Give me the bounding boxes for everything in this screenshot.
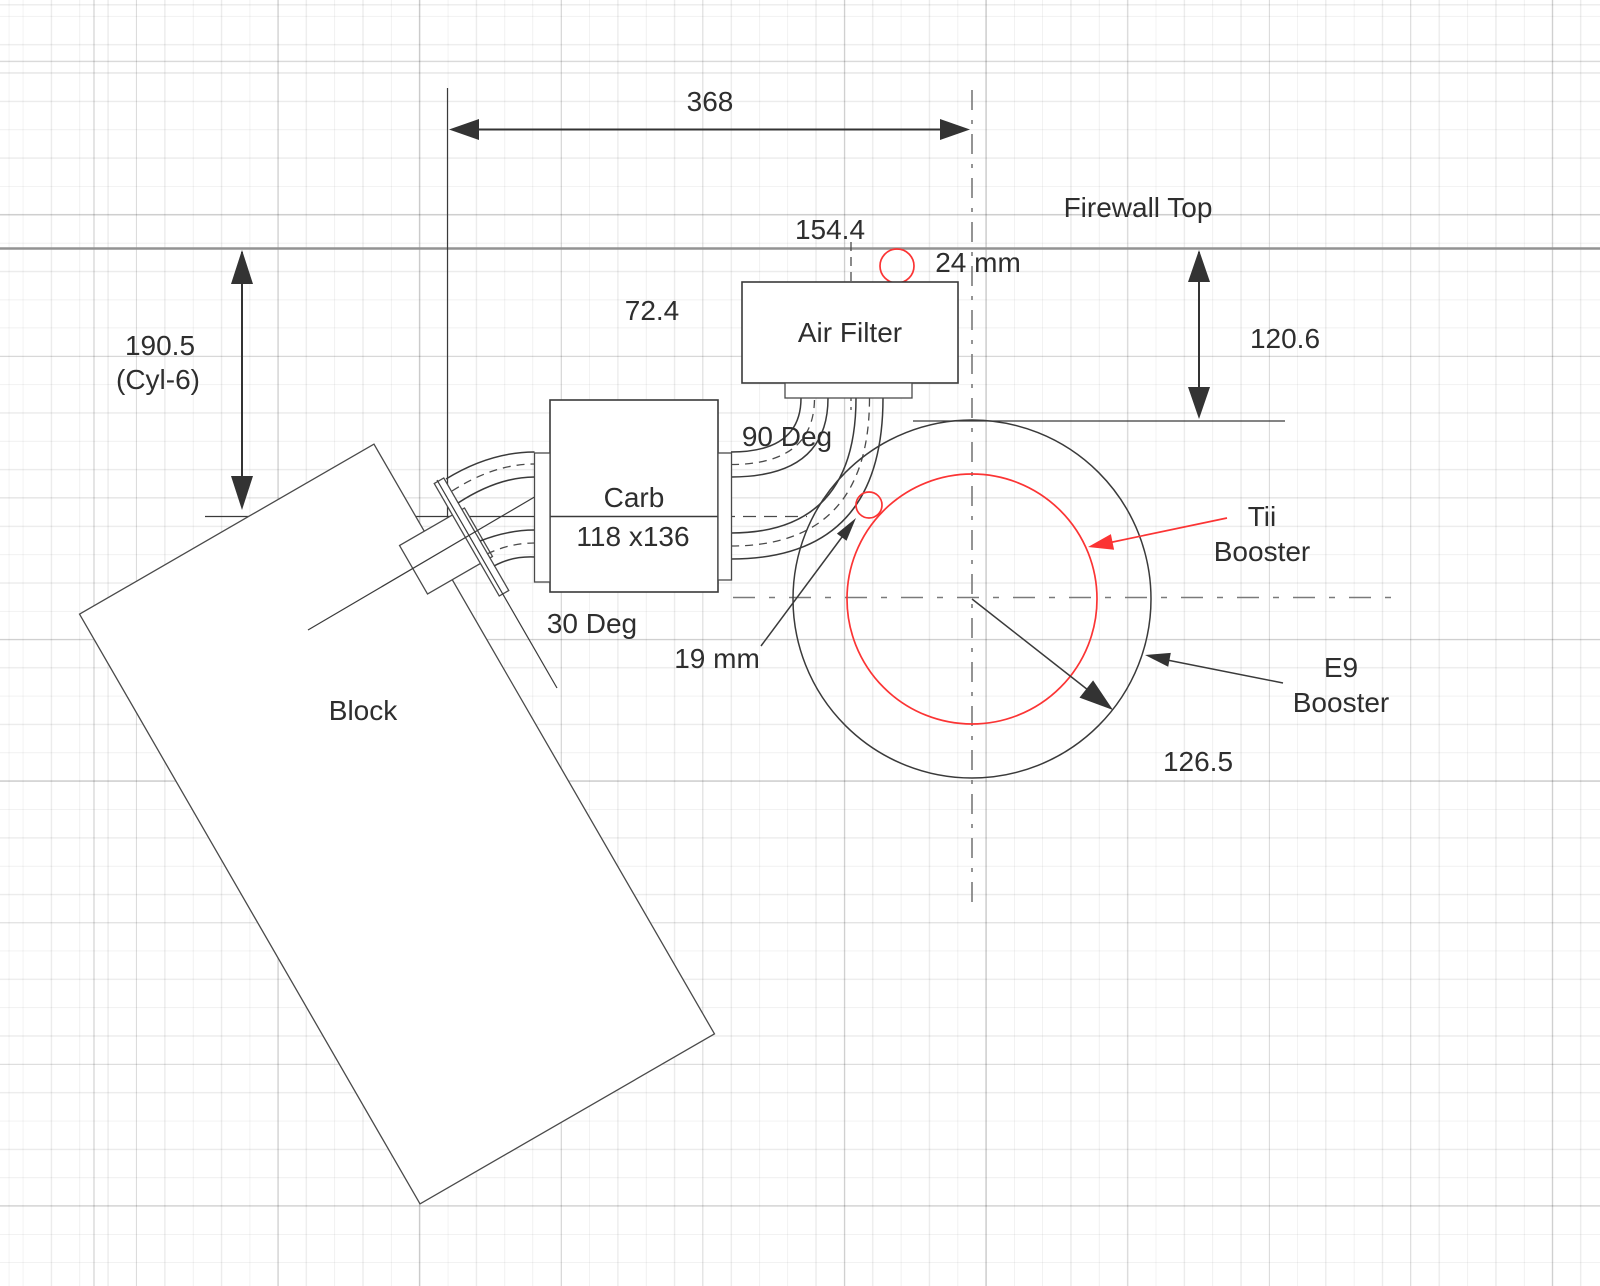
diagram-canvas: 368 154.4 Firewall Top 24 mm 72.4 120.6 … — [0, 0, 1600, 1286]
runner-lower-top-line[interactable] — [480, 530, 535, 541]
dim-154-label[interactable]: 154.4 — [795, 214, 865, 245]
booster-radius-arrowhead — [1080, 680, 1114, 710]
air-filter-base-plate[interactable] — [785, 383, 912, 398]
dim-190-note-label[interactable]: (Cyl-6) — [116, 364, 200, 395]
air-filter-label[interactable]: Air Filter — [798, 317, 902, 348]
carb-size-label[interactable]: 118 x136 — [576, 521, 689, 552]
dim-190-arrowhead-bottom — [231, 476, 253, 510]
bend-90deg-label[interactable]: 90 Deg — [742, 421, 832, 452]
firewall-top-label[interactable]: Firewall Top — [1064, 192, 1213, 223]
hose-19mm-leader-line[interactable] — [761, 533, 845, 646]
carb-left-flange[interactable] — [535, 453, 551, 582]
carb-label[interactable]: Carb — [604, 482, 665, 513]
e9-leader-arrowhead — [1145, 653, 1171, 667]
dim-126-label[interactable]: 126.5 — [1163, 746, 1233, 777]
hole-24mm-circle[interactable] — [880, 249, 914, 283]
dim-120-arrowhead-top — [1188, 250, 1210, 282]
dim-72-label[interactable]: 72.4 — [625, 295, 680, 326]
dim-120-label[interactable]: 120.6 — [1250, 323, 1320, 354]
hose-19mm-arrowhead — [837, 518, 856, 541]
duct2-inner-line[interactable] — [731, 398, 856, 533]
dim-190-label[interactable]: 190.5 — [125, 330, 195, 361]
dim-368-arrowhead-left — [449, 119, 479, 140]
dim-190-arrowhead-top — [231, 250, 253, 284]
e9-leader-line[interactable] — [1162, 659, 1283, 683]
e9-booster-label-line1[interactable]: E9 — [1324, 652, 1358, 683]
dim-24mm-label[interactable]: 24 mm — [935, 247, 1021, 278]
block-label[interactable]: Block — [329, 695, 398, 726]
hose-19mm-circle[interactable] — [856, 492, 882, 518]
runner-upper-top-line[interactable] — [446, 452, 535, 479]
dim-19mm-label[interactable]: 19 mm — [674, 643, 760, 674]
runner-lower-centerline[interactable] — [487, 543, 535, 554]
dim-368-label[interactable]: 368 — [687, 86, 734, 117]
tii-leader-arrowhead — [1088, 534, 1114, 550]
tii-booster-label-line2[interactable]: Booster — [1214, 536, 1311, 567]
runner-lower-bottom-line[interactable] — [494, 557, 535, 566]
drawing-layer: 368 154.4 Firewall Top 24 mm 72.4 120.6 … — [0, 0, 1600, 1286]
tii-leader-line[interactable] — [1108, 518, 1227, 543]
dim-120-arrowhead-bottom — [1188, 387, 1210, 419]
carb-right-flange[interactable] — [718, 453, 732, 580]
booster-radius-line[interactable] — [972, 599, 1088, 690]
dim-368-arrowhead-right — [940, 119, 970, 140]
e9-booster-label-line2[interactable]: Booster — [1293, 687, 1390, 718]
tilt-30deg-label[interactable]: 30 Deg — [547, 608, 637, 639]
tii-booster-label-line1[interactable]: Tii — [1248, 501, 1277, 532]
